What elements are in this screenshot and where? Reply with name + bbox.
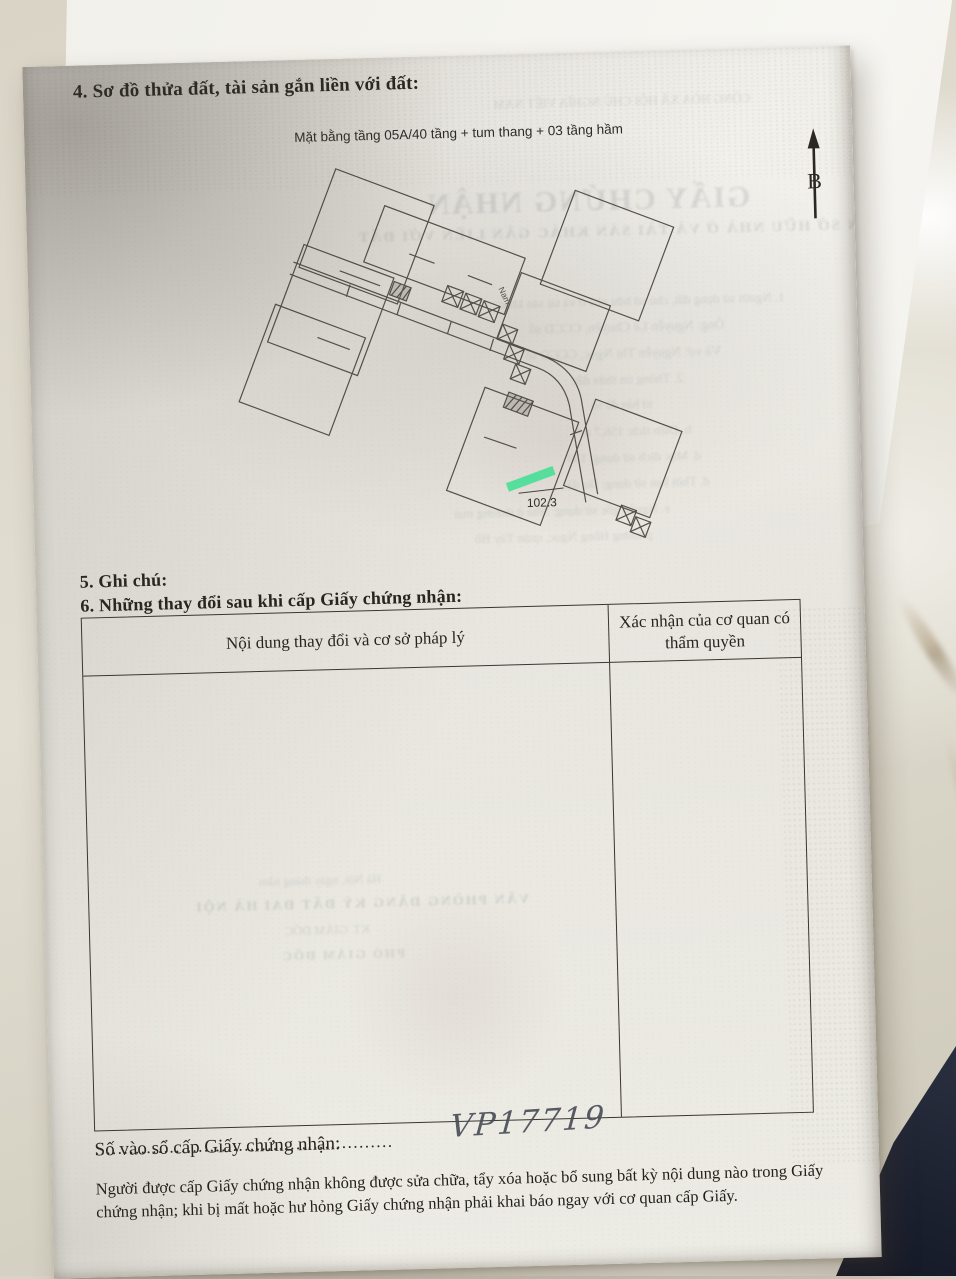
- partition-line: [317, 337, 349, 351]
- footer-note: Người được cấp Giấy chứng nhận không đượ…: [95, 1158, 860, 1225]
- partition-line: [484, 436, 516, 449]
- north-arrow-icon: B: [792, 126, 839, 237]
- unit-block: [564, 399, 682, 517]
- table-col2-empty-cell: [609, 658, 813, 1117]
- partition-line: [468, 275, 492, 286]
- door-tick: [447, 322, 451, 334]
- door-tick: [397, 303, 401, 315]
- elevator-core: [441, 284, 500, 324]
- unit-block: [540, 190, 673, 320]
- label-underline: [518, 488, 563, 493]
- elevator-core: [616, 504, 652, 538]
- dotted-leader: ........................................…: [94, 1132, 393, 1160]
- stair-hatch: [503, 392, 533, 416]
- section5-title: 5. Ghi chú:: [80, 569, 168, 592]
- table-col1-empty-cell: [83, 663, 621, 1131]
- unit-block: [239, 304, 365, 435]
- north-label: B: [807, 168, 822, 193]
- door-tick: [346, 285, 350, 297]
- table-col2-header: Xác nhận của cơ quan có thẩm quyền: [608, 600, 801, 663]
- photo-of-land-certificate: { "page": { "section4_title": "4. Sơ đồ …: [0, 0, 956, 1276]
- floor-plan: Nam 102.3: [227, 141, 717, 553]
- changes-table: Nội dung thay đổi và cơ sở pháp lý Xác n…: [81, 599, 814, 1132]
- door-tick: [490, 339, 494, 351]
- unit-block: [299, 169, 434, 304]
- certificate-page: CỘNG HÒA XÃ HỘI CHỦ NGHĨA VIỆT NAM GIẤY …: [22, 45, 881, 1278]
- green-highlight-mark: [507, 470, 554, 487]
- unit-area-label: 102.3: [527, 495, 558, 510]
- stair-hatch: [389, 282, 411, 301]
- unit-block: [268, 245, 394, 376]
